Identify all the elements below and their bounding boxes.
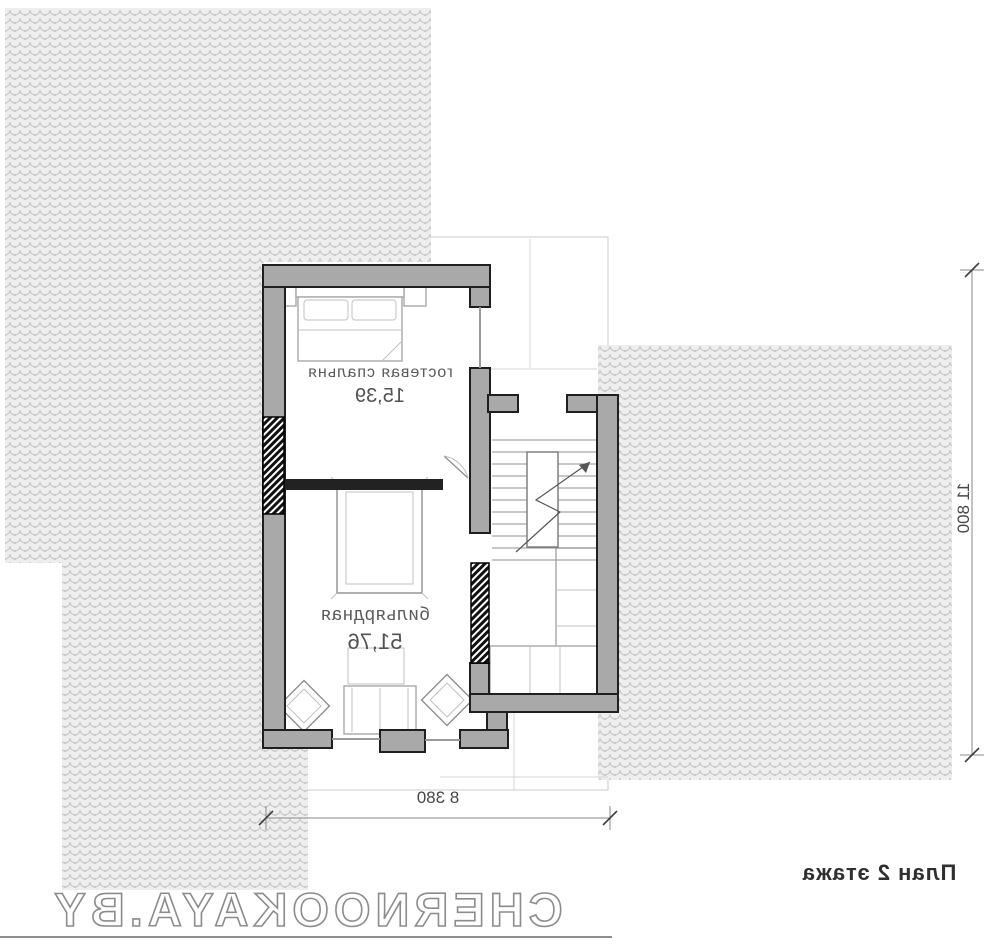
billiard-table-icon [331, 477, 428, 599]
chimney-shaft-icon [471, 563, 489, 663]
roof-hatch-right [598, 345, 952, 780]
sofa-icon [344, 686, 416, 734]
watermark-underline [0, 936, 612, 938]
interior-wall [285, 479, 443, 490]
watermark-text: CHERNOOKAYA.BY [0, 882, 612, 937]
plan-title: План 2 этажа [796, 860, 962, 886]
room-label-billiard: бильярдная [280, 604, 470, 625]
dimension-height-text: 11 800 [952, 448, 976, 568]
room-area-guest-bedroom: 15,39 [285, 385, 475, 408]
stair-void [527, 452, 558, 547]
room-area-billiard: 51,76 [280, 629, 470, 655]
floor-plan-canvas: гостевая спальня 15,39 бильярдная 51,76 … [0, 0, 1000, 947]
dimension-width-text: 8 380 [348, 788, 528, 808]
room-label-guest-bedroom: гостевая спальня [285, 364, 475, 382]
dimension-width [259, 806, 617, 830]
chimney-shaft-icon [263, 417, 284, 514]
